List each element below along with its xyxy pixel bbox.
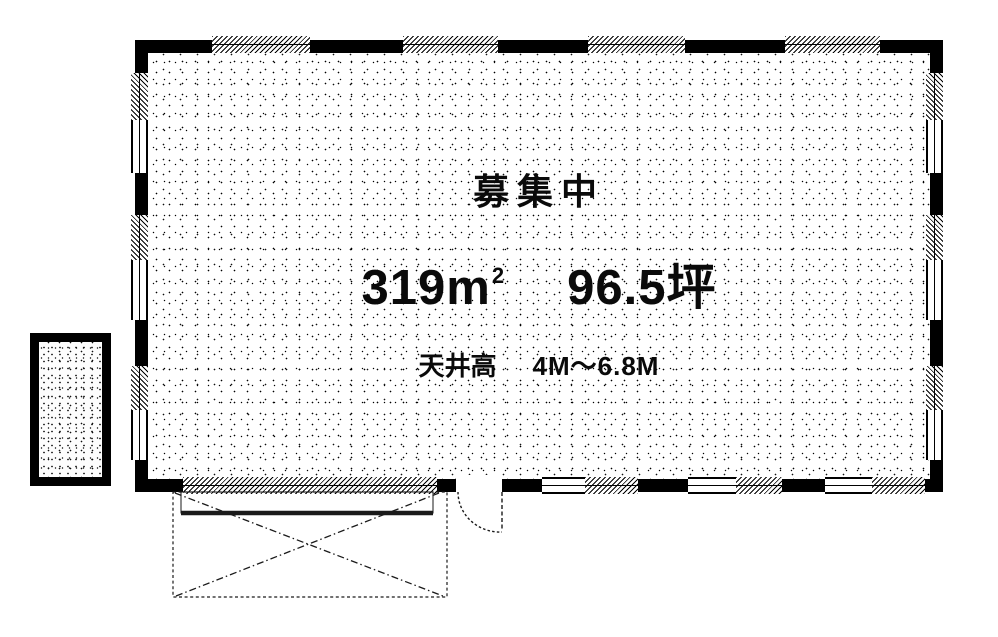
window-icon bbox=[926, 260, 943, 320]
window-icon bbox=[688, 477, 736, 494]
window-icon bbox=[131, 215, 148, 260]
window-icon bbox=[872, 477, 925, 494]
window-icon bbox=[131, 260, 148, 320]
window-icon bbox=[585, 477, 638, 494]
window-icon bbox=[926, 366, 943, 410]
status-label: 募集中 bbox=[135, 163, 943, 215]
ceiling-label-text: 天井高 bbox=[419, 351, 497, 381]
window-icon bbox=[926, 73, 943, 120]
area-label: 319m296.5坪 bbox=[135, 248, 943, 319]
dock-platform-icon bbox=[173, 492, 447, 597]
squared-superscript: 2 bbox=[492, 263, 505, 288]
window-icon bbox=[131, 120, 148, 173]
window-icon bbox=[926, 410, 943, 460]
ceiling-height-label: 天井高4M～6.8M bbox=[135, 346, 943, 383]
window-icon bbox=[785, 36, 880, 53]
cross-brace-line bbox=[176, 493, 439, 596]
floor-plan: 募集中 319m296.5坪 天井高4M～6.8M bbox=[0, 0, 998, 637]
area-sqm: 319m2 bbox=[362, 261, 506, 315]
window-icon bbox=[212, 36, 310, 53]
ceiling-value: 4M～6.8M bbox=[533, 351, 660, 381]
door-swing-icon bbox=[458, 492, 502, 532]
window-icon bbox=[131, 410, 148, 460]
window-icon bbox=[588, 36, 685, 53]
window-icon bbox=[542, 477, 585, 494]
side-annex-room bbox=[30, 333, 111, 486]
cross-brace-line bbox=[175, 493, 443, 596]
window-icon bbox=[736, 477, 782, 494]
window-icon bbox=[131, 366, 148, 410]
window-icon bbox=[131, 73, 148, 120]
window-icon bbox=[403, 36, 498, 53]
area-tsubo: 96.5坪 bbox=[567, 261, 716, 315]
window-icon bbox=[926, 215, 943, 260]
window-icon bbox=[926, 120, 943, 173]
window-icon bbox=[825, 477, 872, 494]
door-opening bbox=[456, 475, 502, 495]
window-icon bbox=[183, 477, 437, 494]
